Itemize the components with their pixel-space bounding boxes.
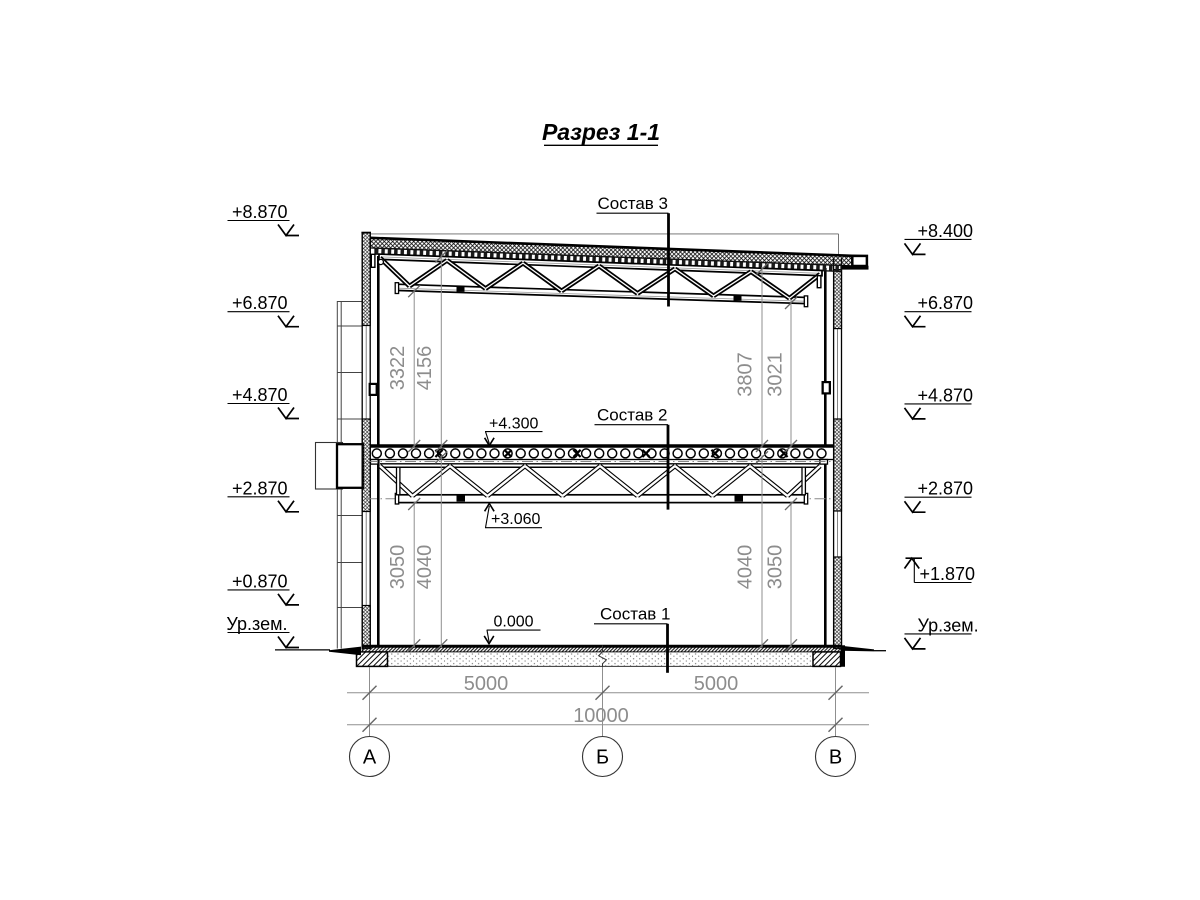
svg-text:3050: 3050 — [765, 545, 787, 590]
svg-text:Ур.зем.: Ур.зем. — [226, 614, 287, 634]
svg-text:3322: 3322 — [387, 346, 409, 391]
svg-text:+3.060: +3.060 — [491, 511, 540, 528]
svg-text:4156: 4156 — [414, 346, 436, 391]
svg-text:+4.870: +4.870 — [918, 385, 974, 405]
svg-text:3807: 3807 — [735, 352, 757, 397]
svg-text:4040: 4040 — [414, 545, 436, 590]
svg-text:+4.300: +4.300 — [489, 416, 538, 433]
svg-text:Ур.зем.: Ур.зем. — [918, 615, 979, 635]
svg-text:+2.870: +2.870 — [918, 479, 974, 499]
svg-text:+1.870: +1.870 — [920, 564, 976, 584]
svg-text:Разрез 1-1: Разрез 1-1 — [542, 119, 660, 145]
svg-text:+0.870: +0.870 — [232, 571, 288, 591]
svg-text:+6.870: +6.870 — [232, 293, 288, 313]
svg-text:+8.870: +8.870 — [232, 202, 288, 222]
svg-text:Состав 1: Состав 1 — [600, 605, 671, 624]
svg-text:0.000: 0.000 — [494, 614, 534, 631]
svg-text:5000: 5000 — [464, 673, 509, 695]
svg-text:Б: Б — [596, 747, 609, 769]
svg-text:+2.870: +2.870 — [232, 478, 288, 498]
svg-text:4040: 4040 — [735, 545, 757, 590]
svg-text:+4.870: +4.870 — [232, 385, 288, 405]
svg-text:3021: 3021 — [765, 352, 787, 397]
svg-text:В: В — [829, 747, 842, 769]
svg-text:А: А — [363, 747, 377, 769]
svg-text:+8.400: +8.400 — [918, 221, 974, 241]
svg-text:5000: 5000 — [694, 673, 739, 695]
svg-text:Состав 3: Состав 3 — [598, 194, 669, 213]
svg-text:Состав 2: Состав 2 — [597, 406, 668, 425]
svg-text:10000: 10000 — [573, 705, 629, 727]
svg-text:3050: 3050 — [387, 545, 409, 590]
svg-text:+6.870: +6.870 — [918, 293, 974, 313]
